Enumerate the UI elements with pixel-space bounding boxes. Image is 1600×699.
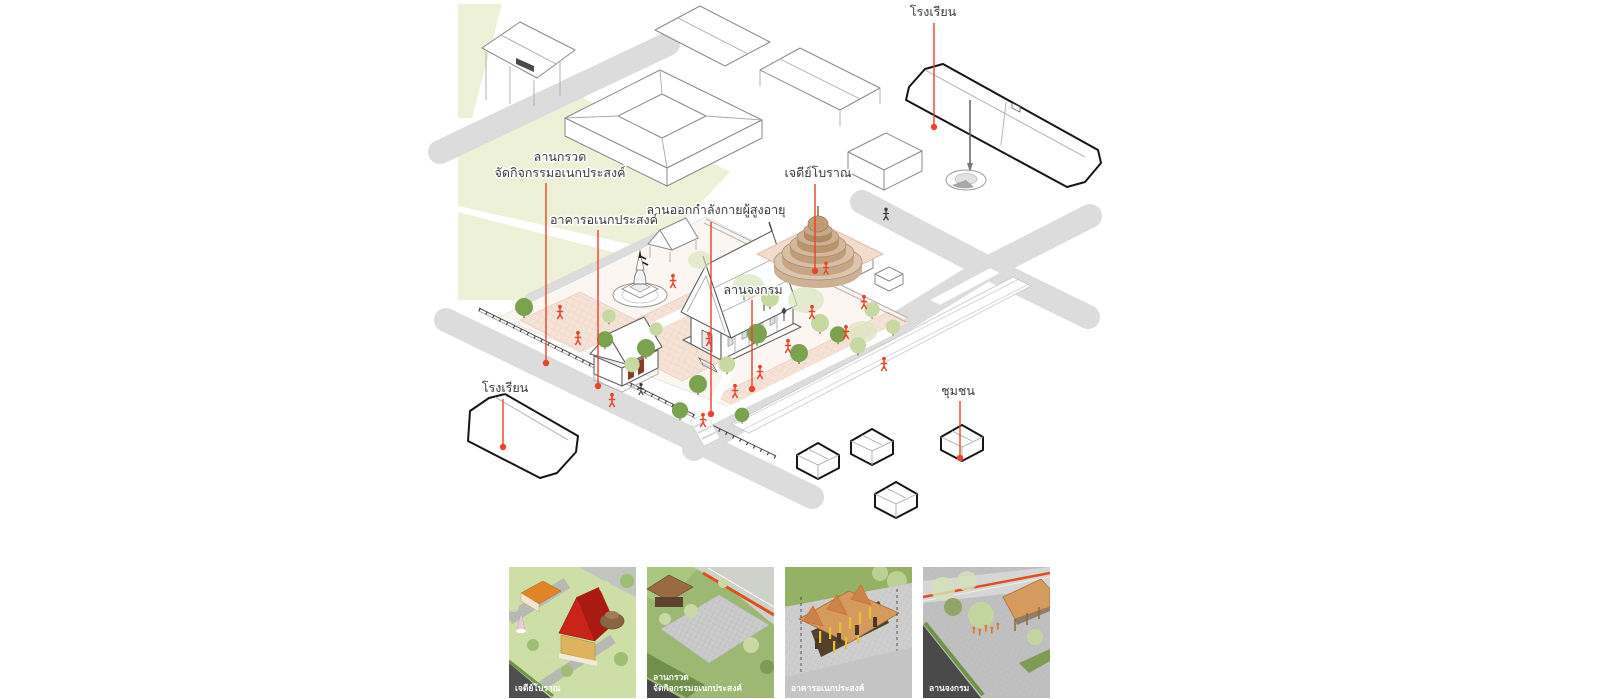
label-community: ชุมชน bbox=[941, 384, 975, 399]
community-houses bbox=[797, 425, 983, 518]
leader-dot bbox=[957, 455, 963, 461]
label-school-top: โรงเรียน bbox=[910, 4, 957, 19]
architecture-site-diagram: โรงเรียน ลานกรวด จัดกิจกรรมอเนกประสงค์ อ… bbox=[0, 0, 1600, 699]
thumbnail-caption: ลานกรวด bbox=[653, 672, 689, 682]
leader-dot bbox=[931, 124, 937, 130]
annex-box bbox=[848, 133, 922, 190]
label-multipurpose-building: อาคารอเนกประสงค์ bbox=[550, 213, 658, 227]
thumbnail-caption: ลานจงกรม bbox=[929, 683, 969, 693]
thumbnail-row: เจดีย์โบราณ ลานกรว bbox=[509, 565, 1050, 698]
thumbnail-multipurpose-building: อาคารอเนกประสงค์ bbox=[785, 565, 912, 698]
long-hall-top bbox=[655, 6, 770, 66]
thumbnail-gravel-yard: ลานกรวด จัดกิจกรรมอเนกประสงค์ bbox=[647, 567, 774, 698]
thumbnail-ancient-chedi: เจดีย์โบราณ bbox=[509, 567, 636, 698]
site-plan bbox=[440, 4, 1101, 518]
thumbnail-caption: เจดีย์โบราณ bbox=[515, 683, 561, 693]
thumbnail-walking-yard: ลานจงกรม bbox=[923, 567, 1050, 698]
leader-dot bbox=[812, 268, 818, 274]
leader-dot bbox=[500, 444, 506, 450]
diagram-canvas: โรงเรียน ลานกรวด จัดกิจกรรมอเนกประสงค์ อ… bbox=[0, 0, 1600, 699]
gabled-hall-right bbox=[760, 48, 880, 126]
leader-dot bbox=[749, 386, 755, 392]
label-elderly-exercise-yard: ลานออกกำลังกายผู้สูงอายุ bbox=[647, 203, 786, 218]
label-walking-meditation-yard: ลานจงกรม bbox=[723, 283, 782, 297]
label-gravel-yard-line1: ลานกรวด bbox=[534, 150, 587, 164]
leader-dot bbox=[708, 411, 714, 417]
leader-dot bbox=[543, 360, 549, 366]
leader-dot bbox=[595, 383, 601, 389]
thumbnail-caption: อาคารอเนกประสงค์ bbox=[791, 683, 865, 693]
label-gravel-yard-line2: จัดกิจกรรมอเนกประสงค์ bbox=[495, 166, 626, 180]
label-ancient-chedi: เจดีย์โบราณ bbox=[784, 165, 851, 180]
thumbnail-caption: จัดกิจกรรมอเนกประสงค์ bbox=[653, 683, 742, 693]
label-school-bottom: โรงเรียน bbox=[482, 380, 529, 395]
school-building-bottom bbox=[468, 394, 578, 478]
